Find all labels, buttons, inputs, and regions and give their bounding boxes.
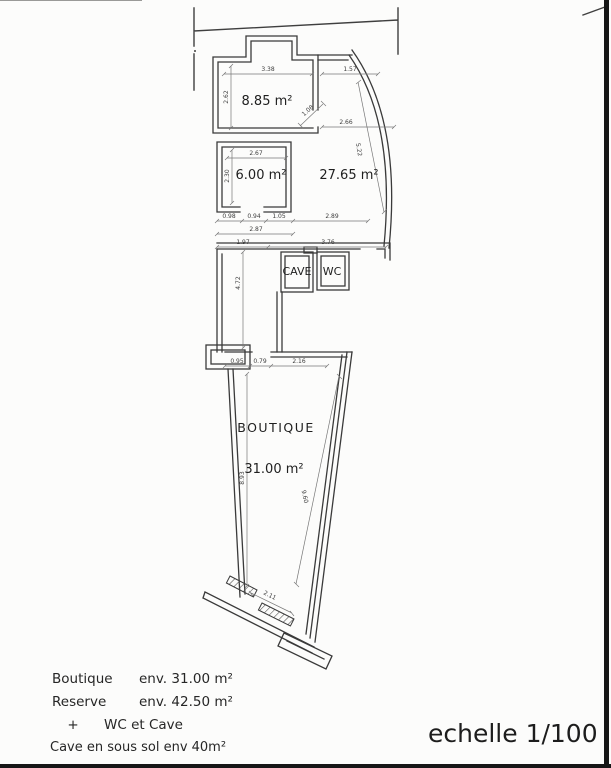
floor-plan-drawing: 3.38 1.57 2.62 1.08 2.66 5.22 2.67 2.30 … (0, 0, 611, 768)
boutique-walls (203, 352, 352, 669)
legend: Boutique env. 31.00 m² Reserve env. 42.5… (50, 671, 233, 755)
room-label-wc: WC (323, 265, 342, 278)
legend-wc-cave-text: WC et Cave (104, 717, 183, 733)
legend-row-wc-cave: + WC et Cave (50, 717, 233, 733)
legend-row-reserve: Reserve env. 42.50 m² (50, 694, 233, 710)
dim-label-chain1-c: 1.05 (272, 213, 286, 220)
room-label-boutique: BOUTIQUE (237, 420, 315, 435)
scan-edge-right (604, 0, 609, 768)
dim-label-boutique-a: 0.95 (230, 358, 244, 365)
scan-edge-top (0, 0, 142, 1)
dim-label-chain3-b: 3.76 (321, 239, 335, 246)
dim-label-top-right-width: 1.57 (343, 66, 357, 73)
dim-label-room1-height: 2.62 (223, 90, 230, 104)
legend-plus-sign: + (60, 717, 86, 733)
legend-cave-note: Cave en sous sol env 40m² (50, 740, 233, 755)
dim-label-corridor: 4.72 (235, 276, 242, 290)
dim-label-entry: 2.11 (262, 590, 277, 602)
room-label-600: 6.00 m² (236, 168, 287, 183)
scanned-floor-plan-page: 3.38 1.57 2.62 1.08 2.66 5.22 2.67 2.30 … (0, 0, 611, 768)
dim-label-chain3-a: 1.97 (236, 239, 250, 246)
legend-row-boutique: Boutique env. 31.00 m² (50, 671, 233, 687)
room-label-boutique-area: 31.00 m² (244, 462, 303, 477)
scale-label: echelle 1/100 (428, 719, 598, 748)
dim-label-chain1-d: 2.89 (325, 213, 339, 220)
dim-label-chain1-b: 0.94 (247, 213, 261, 220)
dim-label-boutique-right: 9.60 (300, 489, 310, 504)
legend-value-boutique: env. 31.00 m² (139, 671, 233, 687)
dim-label-room1-width: 3.38 (261, 66, 275, 73)
legend-value-reserve: env. 42.50 m² (139, 694, 233, 710)
dim-label-boutique-c: 2.16 (292, 358, 306, 365)
reserve-walls (213, 36, 392, 260)
dim-label-mid-width: 2.66 (339, 119, 353, 126)
dim-label-chain2: 2.87 (249, 226, 263, 233)
dim-label-room2-width: 2.67 (249, 150, 263, 157)
room-label-2765: 27.65 m² (319, 168, 378, 183)
dim-label-chain1-a: 0.98 (222, 213, 236, 220)
legend-label-reserve: Reserve (52, 694, 109, 710)
corridor-walls (206, 249, 282, 369)
scan-edge-bottom (0, 764, 611, 768)
dim-label-room2-height: 2.30 (224, 169, 231, 183)
dim-label-right-wall: 5.22 (354, 143, 363, 158)
room-label-cave: CAVE (283, 265, 312, 278)
legend-label-boutique: Boutique (52, 671, 109, 687)
room-label-885: 8.85 m² (242, 94, 293, 109)
party-wall-reference-lines (194, 7, 605, 90)
dim-label-boutique-b: 0.79 (253, 358, 267, 365)
